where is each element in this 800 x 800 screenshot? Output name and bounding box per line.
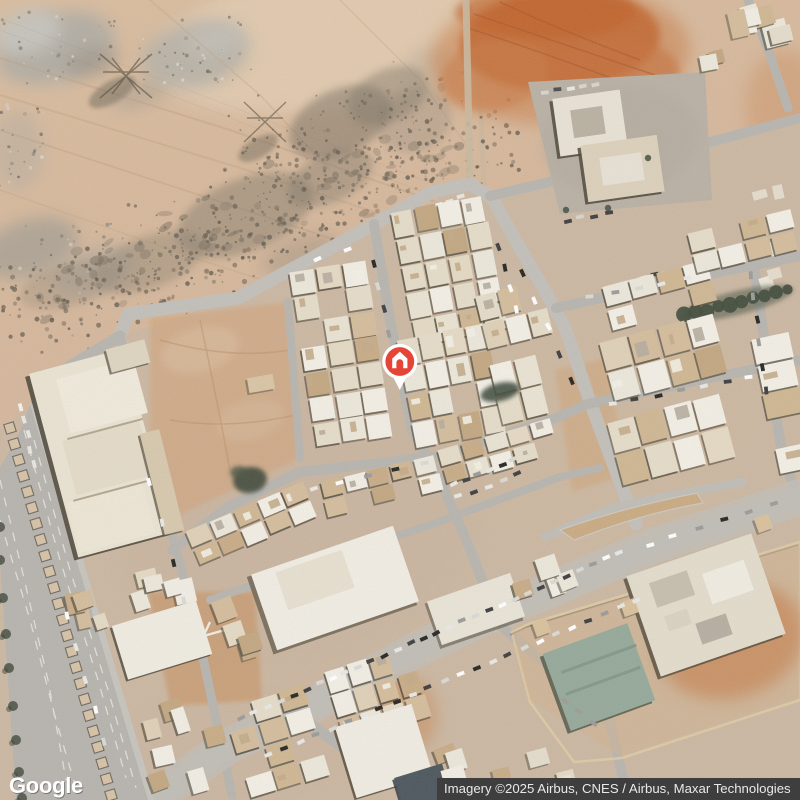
svg-text:Imagery ©2025 Airbus, CNES / A: Imagery ©2025 Airbus, CNES / Airbus, Max…	[444, 781, 791, 796]
svg-text:Google: Google	[9, 773, 83, 798]
